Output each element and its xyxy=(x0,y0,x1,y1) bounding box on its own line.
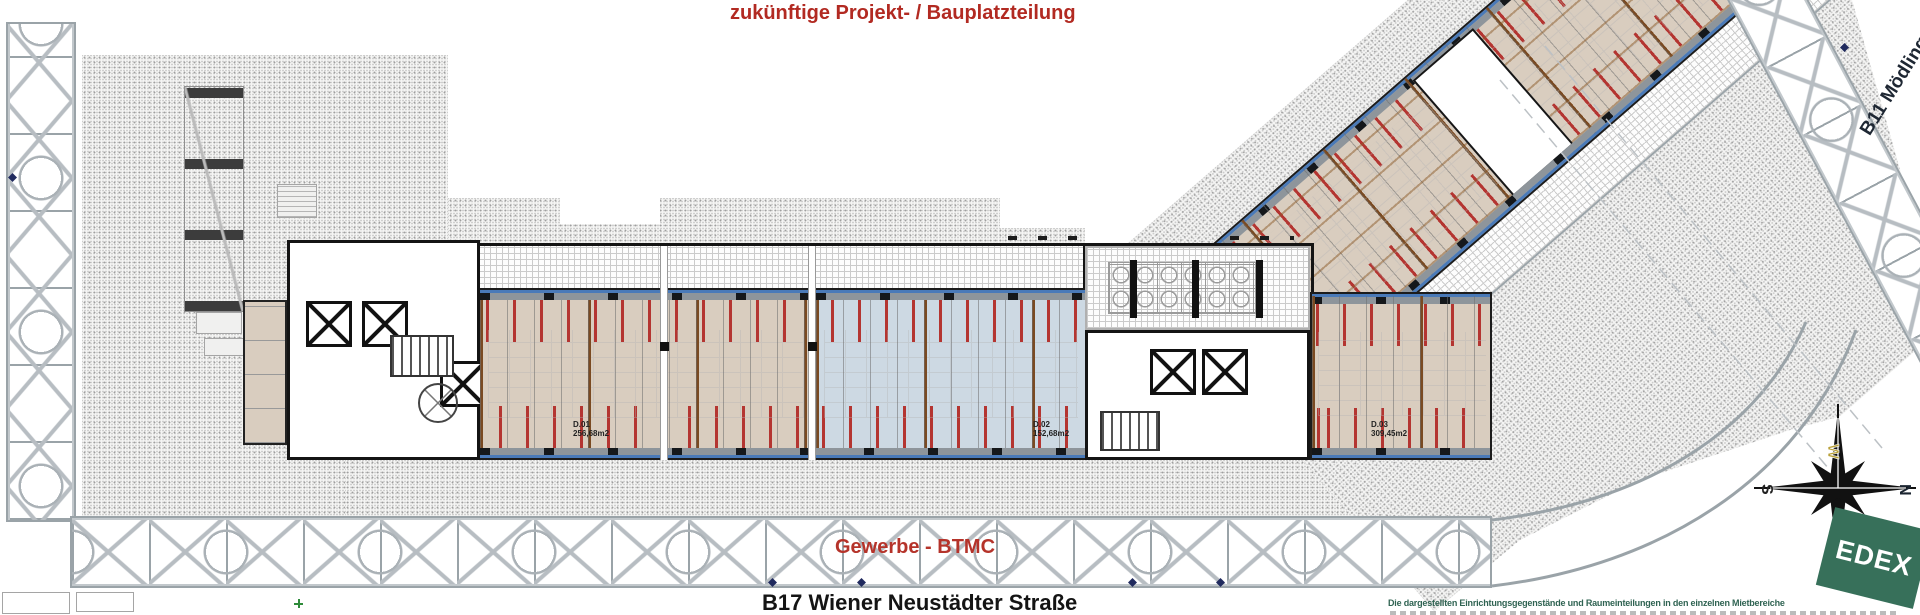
mullions-top xyxy=(480,293,808,300)
street-label-b17: B17 Wiener Neustädter Straße xyxy=(762,590,1077,615)
stair-run xyxy=(390,335,454,377)
spiral-stair xyxy=(418,383,458,423)
street-structure-bottom xyxy=(70,516,1492,588)
paving-strip-above-building xyxy=(448,198,1085,246)
unit-label: D.03 309,45m2 xyxy=(1371,420,1407,438)
courtyard-notch xyxy=(1000,198,1085,228)
column xyxy=(1130,260,1137,318)
column xyxy=(1192,260,1199,318)
edex-logo-text: EDEX xyxy=(1833,534,1916,583)
mullions-top xyxy=(816,293,1085,300)
legend-block xyxy=(277,184,317,218)
unit-id: D.01 xyxy=(573,420,609,429)
structure-fragment xyxy=(76,592,134,612)
stair-core-2 xyxy=(1085,330,1310,460)
unit-area: 152,68m2 xyxy=(1033,429,1069,438)
dimension-marks xyxy=(1230,236,1294,240)
structure-fragment xyxy=(2,592,70,614)
annex-rooms xyxy=(243,300,287,445)
elevator-shaft xyxy=(1202,349,1248,395)
future-division-title: zukünftige Projekt- / Bauplatzteilung xyxy=(730,2,1076,25)
courtyard-notch xyxy=(560,198,660,224)
dimension-marks xyxy=(1008,236,1080,240)
unit-area: 309,45m2 xyxy=(1371,429,1407,438)
site-crane-track xyxy=(184,86,244,312)
glazing-bottom xyxy=(1312,455,1490,458)
elevator-shaft xyxy=(1150,349,1196,395)
partitions xyxy=(480,300,808,448)
unit-label: D.02 152,68m2 xyxy=(1033,420,1069,438)
unit-area: 256,68m2 xyxy=(573,429,609,438)
disclaimer-text: Die dargestellten Einrichtungsgegenständ… xyxy=(1388,598,1785,608)
stair-core-1 xyxy=(287,240,480,460)
facade-line xyxy=(480,458,1085,460)
zone-label: Gewerbe - BTMC xyxy=(835,536,995,559)
survey-cross-icon xyxy=(294,599,303,608)
elevator-shaft xyxy=(306,301,352,347)
mullions-bottom xyxy=(1312,448,1490,455)
expansion-joint xyxy=(660,246,668,460)
unit-label: D.01 256,68m2 xyxy=(573,420,609,438)
mullions-bottom xyxy=(480,448,1085,455)
unit-id: D.03 xyxy=(1371,420,1407,429)
expansion-joint xyxy=(808,246,816,460)
unit-id: D.02 xyxy=(1033,420,1069,429)
stair-run xyxy=(1100,411,1160,451)
terrace-band xyxy=(448,246,1085,290)
outbuilding xyxy=(196,312,242,334)
disclaimer-cut-line xyxy=(1390,611,1900,615)
site-plan-canvas: D.01 256,68m2 D.02 152,68m2 D.03 309,45m… xyxy=(0,0,1920,615)
column xyxy=(1256,260,1263,318)
street-structure-left xyxy=(6,22,76,522)
